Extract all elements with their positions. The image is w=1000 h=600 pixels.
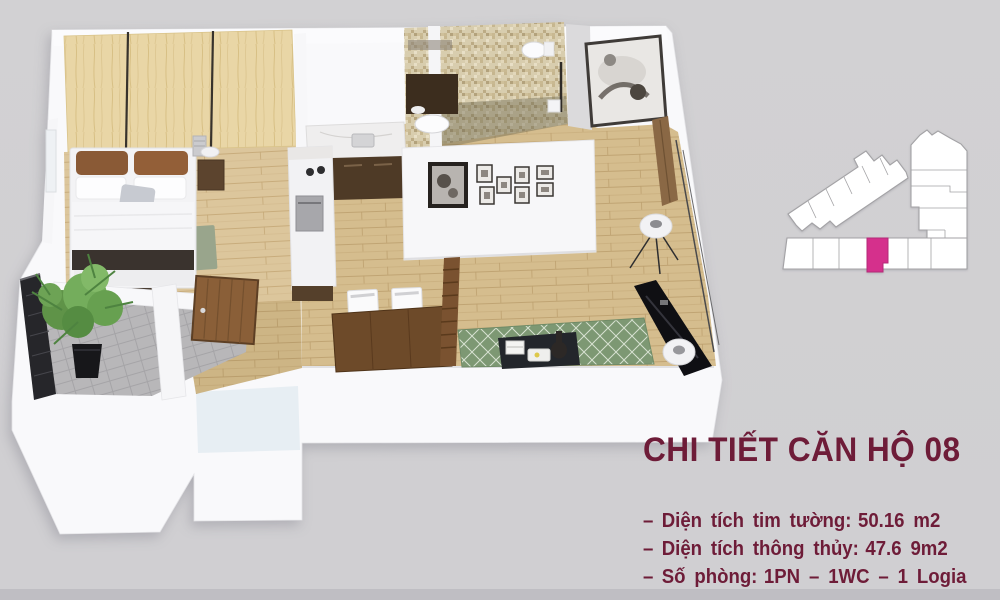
- detail-value: 47.6 9m2: [865, 538, 947, 560]
- entrance-door: [192, 276, 258, 344]
- photo-wall-enclosure: [402, 140, 596, 260]
- bathroom-faucet: [411, 106, 425, 114]
- bullet-dash: –: [643, 538, 653, 560]
- bathroom-mirror: [408, 40, 452, 50]
- wall-artwork: [586, 36, 666, 126]
- footer-strip: [0, 589, 1000, 600]
- bed-pillow-brown: [134, 151, 188, 175]
- bedroom-window: [46, 130, 56, 192]
- bed-duvet: [72, 202, 194, 252]
- shaded-wall-face: [196, 386, 300, 453]
- detail-value: 1PN – 1WC – 1 Logia: [764, 566, 967, 588]
- dining-table: [332, 306, 452, 372]
- site-plan-diagonal-wing: [788, 151, 908, 231]
- bullet-dash: –: [643, 566, 653, 588]
- page-title: CHI TIẾT CĂN HỘ 08: [643, 431, 961, 470]
- shower-panel: [548, 100, 560, 112]
- site-plan-minimap: [783, 130, 967, 272]
- cooktop-burner: [306, 168, 314, 176]
- bed-pillow-brown: [76, 151, 128, 175]
- kitchen-sink: [352, 134, 374, 147]
- detail-label: Số phòng:: [662, 566, 758, 588]
- kitchen-column-marble-top: [288, 146, 333, 160]
- detail-line-gross-area: –Diện tích tim tường:50.16 m2: [643, 508, 966, 536]
- bullet-dash: –: [643, 510, 653, 532]
- plant-pot: [72, 344, 102, 378]
- apartment-details: –Diện tích tim tường:50.16 m2 –Diện tích…: [643, 508, 966, 592]
- cylinder-floor-lamp: [663, 339, 695, 365]
- vase: [551, 342, 567, 359]
- kitchen-base-cabinet: [292, 286, 333, 301]
- brochure-page: CHI TIẾT CĂN HỘ 08 –Diện tích tim tường:…: [0, 0, 1000, 600]
- kitchen-cabinet-dark: [332, 156, 406, 200]
- detail-label: Diện tích tim tường:: [662, 510, 852, 532]
- toilet-tank: [544, 42, 554, 56]
- cooktop-burner: [317, 166, 325, 174]
- apartment-3d-floor-plan: [12, 22, 722, 534]
- nightstand: [198, 160, 224, 190]
- detail-line-net-area: –Diện tích thông thủy:47.6 9m2: [643, 536, 966, 564]
- detail-value: 50.16 m2: [858, 510, 940, 532]
- bathroom-sink: [415, 115, 449, 133]
- bed-pillow-white: [76, 177, 126, 199]
- detail-label: Diện tích thông thủy:: [662, 538, 859, 560]
- oven: [296, 196, 323, 231]
- toilet: [522, 42, 546, 58]
- detail-line-rooms: –Số phòng:1PN – 1WC – 1 Logia: [643, 564, 966, 592]
- wardrobe: [64, 30, 296, 152]
- kitchen-bedroom-wall: [294, 33, 308, 152]
